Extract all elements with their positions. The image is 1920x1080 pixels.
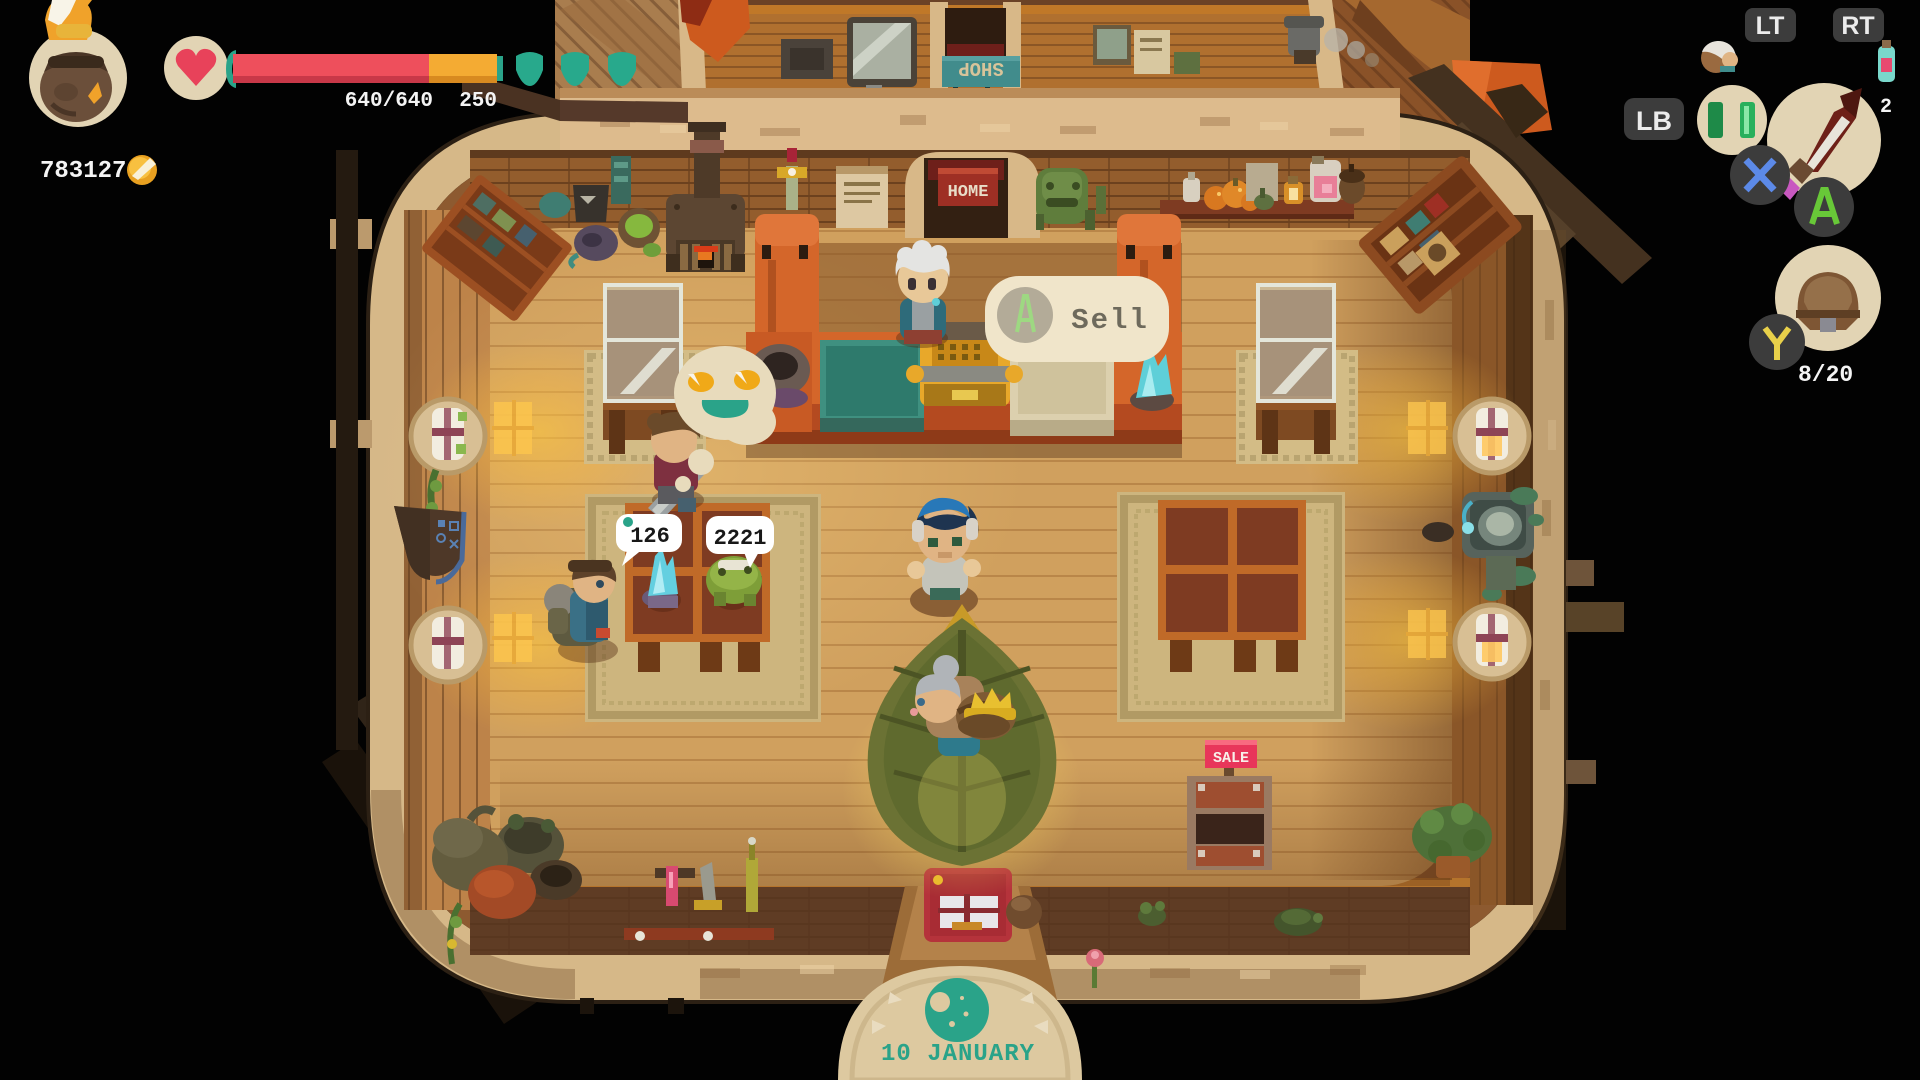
svg-text:Sell: Sell	[1071, 304, 1149, 337]
svg-text:640/640: 640/640	[345, 90, 433, 113]
svg-text:SHOP: SHOP	[958, 57, 1004, 79]
svg-text:2: 2	[1880, 96, 1892, 119]
svg-text:10 JANUARY: 10 JANUARY	[881, 1041, 1035, 1068]
svg-text:8/20: 8/20	[1798, 362, 1853, 388]
svg-text:126: 126	[630, 524, 670, 549]
svg-text:SALE: SALE	[1213, 750, 1249, 767]
svg-text:2221: 2221	[714, 526, 767, 551]
svg-text:HOME: HOME	[948, 183, 989, 202]
svg-text:LT: LT	[1756, 12, 1785, 40]
svg-text:250: 250	[459, 90, 497, 113]
svg-text:LB: LB	[1636, 106, 1672, 136]
svg-text:RT: RT	[1841, 12, 1874, 40]
svg-text:783127: 783127	[40, 158, 126, 185]
